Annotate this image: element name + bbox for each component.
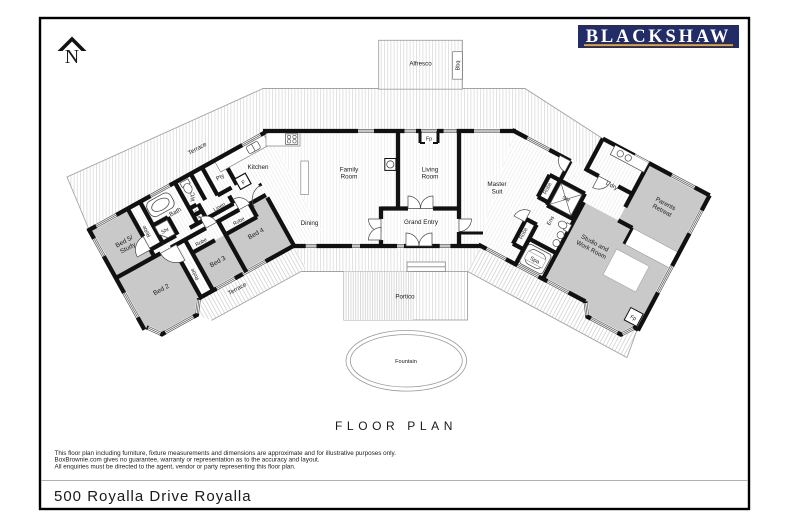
svg-text:Suit: Suit	[492, 189, 503, 196]
svg-text:Alfresco: Alfresco	[409, 61, 432, 68]
svg-text:Bbq: Bbq	[456, 61, 462, 71]
svg-text:FLOOR PLAN: FLOOR PLAN	[335, 419, 457, 433]
svg-text:Master: Master	[487, 181, 506, 188]
svg-text:Fountain: Fountain	[395, 359, 417, 365]
svg-text:Room: Room	[422, 174, 439, 181]
svg-text:N: N	[65, 46, 79, 68]
svg-text:WC: WC	[190, 192, 196, 201]
svg-text:Kitchen: Kitchen	[247, 164, 269, 171]
svg-text:Dining: Dining	[301, 220, 319, 227]
svg-text:500 Royalla Drive Royalla: 500 Royalla Drive Royalla	[54, 488, 252, 505]
svg-text:Living: Living	[422, 167, 439, 174]
svg-text:Portico: Portico	[395, 294, 415, 301]
svg-text:Room: Room	[341, 174, 358, 181]
svg-text:Family: Family	[340, 167, 359, 174]
svg-text:All enquiries must be directed: All enquiries must be directed to the ag…	[55, 463, 296, 470]
svg-text:BLACKSHAW: BLACKSHAW	[586, 27, 731, 47]
svg-text:Fp: Fp	[426, 137, 432, 143]
svg-text:Grand Entry: Grand Entry	[404, 219, 439, 226]
